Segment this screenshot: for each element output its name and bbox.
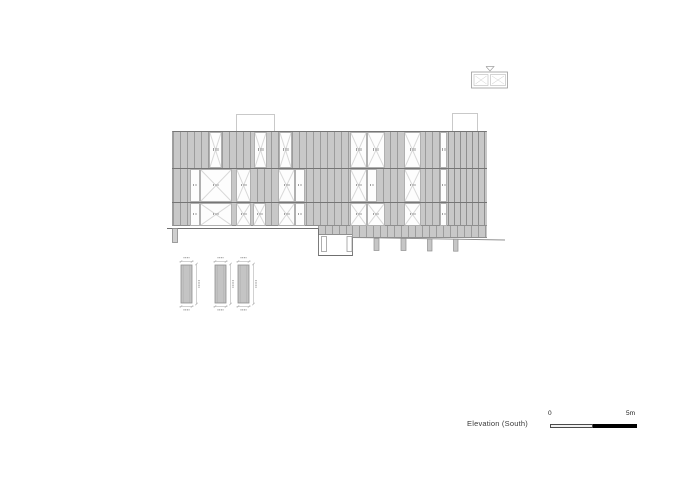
panel-tag-mark	[213, 148, 219, 150]
dimension-tick	[248, 260, 250, 262]
dimension-tick	[225, 260, 227, 262]
window-panel	[350, 169, 367, 202]
panel-tag-mark	[257, 213, 263, 215]
footing-post	[428, 239, 433, 251]
dimension-tick	[252, 303, 254, 305]
panel-tag-mark	[193, 184, 197, 186]
window-panel	[236, 169, 251, 202]
panel-tag-mark	[193, 213, 197, 215]
cladding-panel-detail	[215, 265, 226, 303]
scale-bar-light-segment	[550, 424, 593, 428]
infill-panel	[190, 203, 200, 226]
drawing-title: Elevation (South)	[467, 419, 528, 428]
infill-panel	[440, 203, 447, 226]
dimension-tick	[180, 305, 182, 307]
view-direction-arrow-icon	[486, 67, 494, 72]
panel-tag-mark	[258, 148, 264, 150]
key-plan-room	[491, 75, 506, 86]
dimension-tick	[191, 305, 193, 307]
panel-tag-mark	[442, 213, 446, 215]
footing-post	[173, 229, 178, 243]
dimension-tick	[248, 305, 250, 307]
panel-tag-mark	[284, 213, 290, 215]
dimension-tick	[237, 305, 239, 307]
dimension-tick	[191, 260, 193, 262]
dimension-tick	[195, 263, 197, 265]
dimension-tick	[195, 303, 197, 305]
footing-post	[322, 237, 327, 252]
key-plan-outline	[472, 72, 508, 88]
footing-post	[374, 239, 379, 251]
footing-post	[347, 237, 352, 252]
facade-cladding-extension	[352, 226, 487, 238]
floor-divider-line	[172, 202, 487, 203]
panel-tag-mark	[373, 213, 379, 215]
panel-tag-mark	[213, 184, 219, 186]
panel-tag-mark	[298, 213, 302, 215]
window-panel	[209, 132, 222, 168]
panel-tag-mark	[284, 184, 290, 186]
infill-panel	[295, 169, 305, 202]
panel-tag-mark	[283, 148, 289, 150]
window-panel	[278, 169, 295, 202]
scale-end-label: 5m	[626, 410, 635, 417]
footing-post	[401, 239, 406, 251]
window-panel	[200, 169, 232, 202]
dimension-tick	[225, 305, 227, 307]
window-panel	[254, 132, 267, 168]
key-plan-room	[474, 75, 488, 86]
dimension-tick	[214, 305, 216, 307]
infill-panel	[295, 203, 305, 226]
infill-panel	[367, 169, 377, 202]
drawing-canvas: Elevation (South) 0 5m	[0, 0, 700, 498]
panel-tag-mark	[370, 184, 374, 186]
scale-bar-dark-segment	[593, 424, 637, 429]
infill-panel	[190, 169, 200, 202]
key-plan-hatch	[492, 76, 504, 84]
window-panel	[404, 169, 421, 202]
panel-tag-mark	[213, 213, 219, 215]
window-panel	[200, 203, 232, 226]
panel-tag-mark	[241, 213, 247, 215]
facade-cladding-extension	[318, 226, 352, 235]
dimension-tick	[229, 263, 231, 265]
panel-tag-mark	[410, 184, 416, 186]
infill-panel	[440, 132, 447, 168]
panel-tag-mark	[356, 148, 362, 150]
cladding-panel-detail	[238, 265, 249, 303]
dimension-tick	[214, 260, 216, 262]
panel-tag-mark	[442, 148, 446, 150]
panel-tag-mark	[442, 184, 446, 186]
key-plan-hatch	[476, 76, 487, 84]
facade-cladding-dense	[448, 132, 487, 225]
footing-post	[454, 239, 459, 251]
window-panel	[367, 203, 385, 226]
window-panel	[350, 132, 367, 168]
window-panel	[279, 132, 292, 168]
scale-start-label: 0	[548, 410, 552, 417]
window-panel	[404, 203, 421, 226]
cladding-panel-detail	[181, 265, 192, 303]
panel-tag-mark	[241, 184, 247, 186]
dimension-tick	[229, 303, 231, 305]
panel-tag-mark	[298, 184, 302, 186]
rooftop-unit-outline	[236, 114, 275, 131]
window-panel	[367, 132, 385, 168]
key-plan-hatch	[476, 76, 487, 84]
window-panel	[253, 203, 266, 226]
window-panel	[236, 203, 251, 226]
floor-divider-line	[172, 168, 487, 169]
panel-tag-mark	[373, 148, 379, 150]
dimension-tick	[180, 260, 182, 262]
window-panel	[278, 203, 295, 226]
rooftop-unit-outline	[452, 113, 478, 131]
panel-tag-mark	[356, 184, 362, 186]
window-panel	[350, 203, 367, 226]
dimension-tick	[237, 260, 239, 262]
key-plan-hatch	[492, 76, 504, 84]
infill-panel	[440, 169, 447, 202]
dimension-tick	[252, 263, 254, 265]
panel-tag-mark	[410, 148, 416, 150]
panel-tag-mark	[356, 213, 362, 215]
panel-tag-mark	[410, 213, 416, 215]
window-panel	[404, 132, 421, 168]
